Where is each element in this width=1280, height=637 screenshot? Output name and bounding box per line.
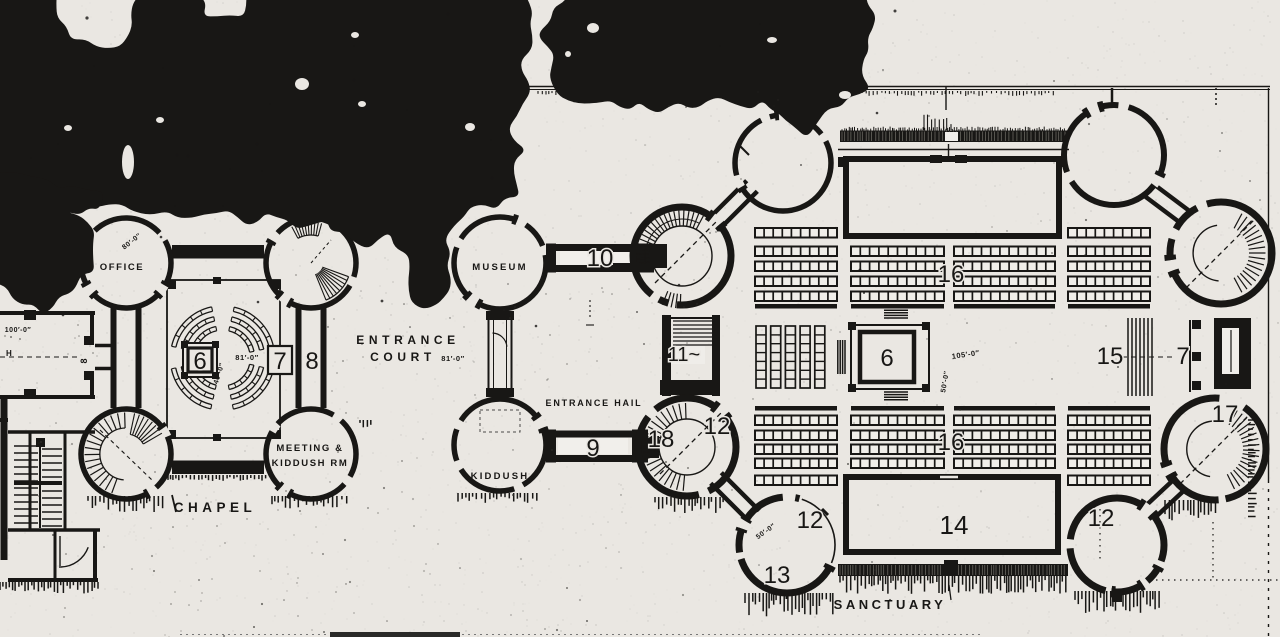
svg-text:100′-0″: 100′-0″ [5, 327, 32, 334]
svg-text:H: H [6, 349, 12, 358]
svg-text:10: 10 [587, 245, 614, 272]
svg-text:11~: 11~ [668, 344, 700, 366]
svg-text:ENTRANCE HAIL: ENTRANCE HAIL [546, 398, 643, 408]
svg-text:7: 7 [273, 348, 286, 375]
svg-text:14: 14 [940, 510, 969, 540]
svg-text:7: 7 [1176, 343, 1189, 370]
svg-text:16: 16 [938, 429, 965, 456]
svg-text:KIDDUSH RM: KIDDUSH RM [272, 458, 349, 469]
svg-text:CHAPEL: CHAPEL [174, 500, 257, 515]
svg-text:8: 8 [79, 358, 89, 363]
svg-text:13: 13 [764, 562, 791, 589]
svg-text:12: 12 [704, 413, 731, 440]
svg-text:SANCTUARY: SANCTUARY [834, 597, 947, 612]
svg-text:81′-0″: 81′-0″ [235, 353, 258, 362]
svg-text:6: 6 [193, 348, 206, 375]
svg-text:12: 12 [797, 507, 824, 534]
svg-text:OFFICE: OFFICE [100, 262, 144, 273]
svg-text:81′-0″: 81′-0″ [441, 354, 464, 363]
svg-text:ENTRANCE: ENTRANCE [356, 333, 459, 347]
svg-text:MEETING &: MEETING & [276, 443, 343, 454]
svg-text:9: 9 [586, 435, 599, 462]
svg-text:8: 8 [305, 348, 318, 375]
svg-text:12: 12 [1088, 505, 1115, 532]
svg-text:17: 17 [1212, 401, 1239, 428]
svg-text:6: 6 [880, 345, 893, 372]
svg-text:COURT: COURT [370, 350, 436, 364]
svg-text:16: 16 [938, 261, 965, 288]
svg-text:MUSEUM: MUSEUM [472, 262, 527, 273]
svg-text:18: 18 [648, 426, 675, 453]
svg-text:KIDDUSH: KIDDUSH [471, 471, 530, 482]
svg-text:15: 15 [1097, 343, 1124, 370]
